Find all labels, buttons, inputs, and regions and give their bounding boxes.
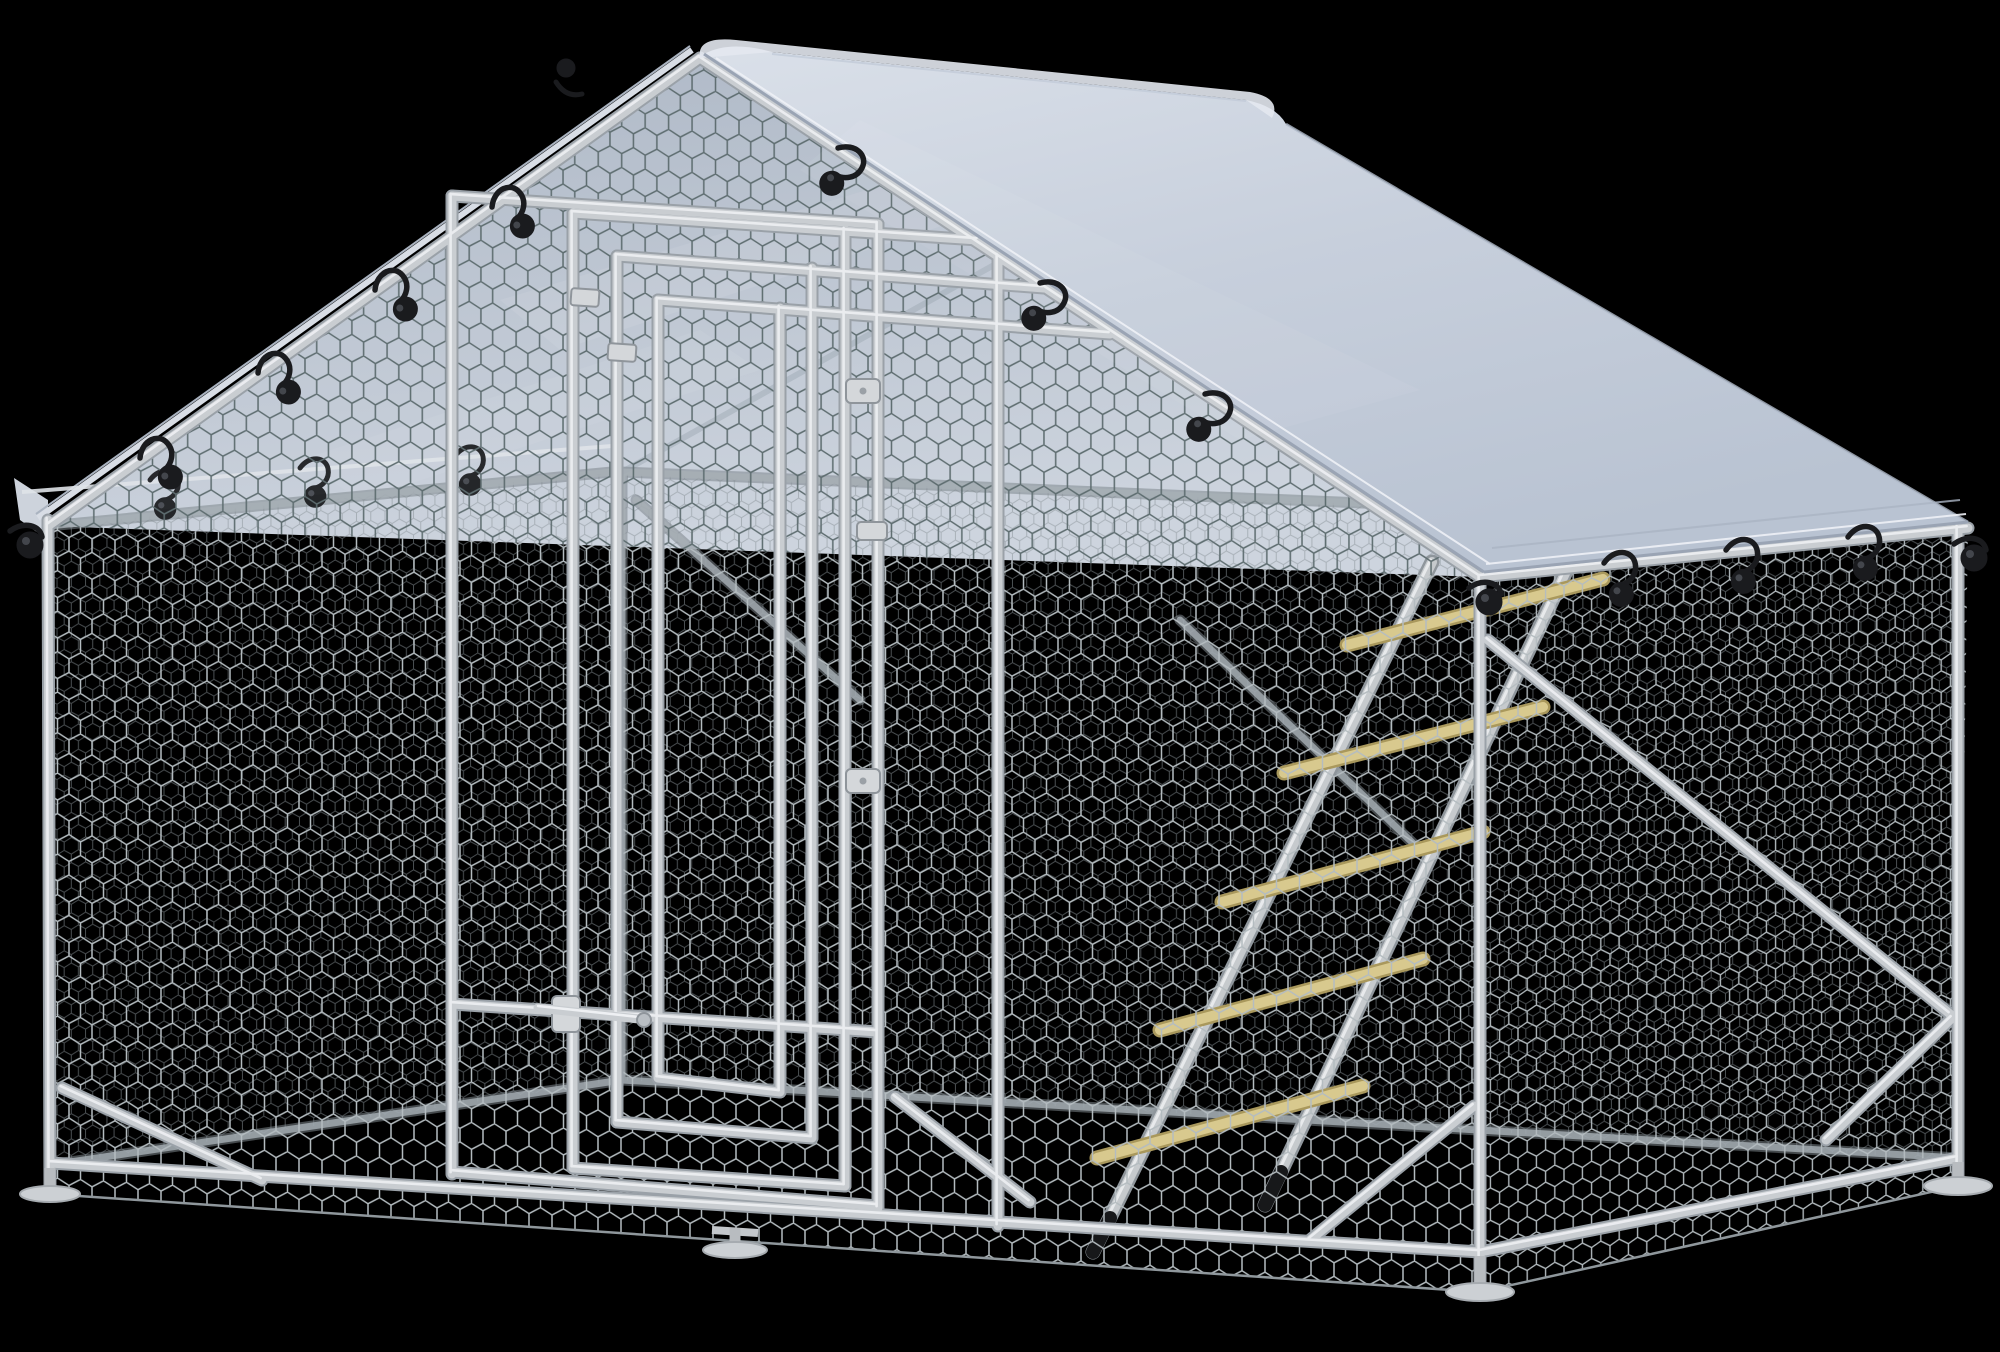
frame-clamp (570, 288, 599, 307)
right-wall-mesh (1480, 528, 1968, 1292)
frame-clamp (607, 343, 636, 362)
product-image (0, 0, 2000, 1352)
frame-clamp (857, 522, 887, 540)
chicken-run-render (0, 0, 2000, 1352)
door-hinge (846, 379, 880, 403)
door-hinge (846, 769, 880, 793)
